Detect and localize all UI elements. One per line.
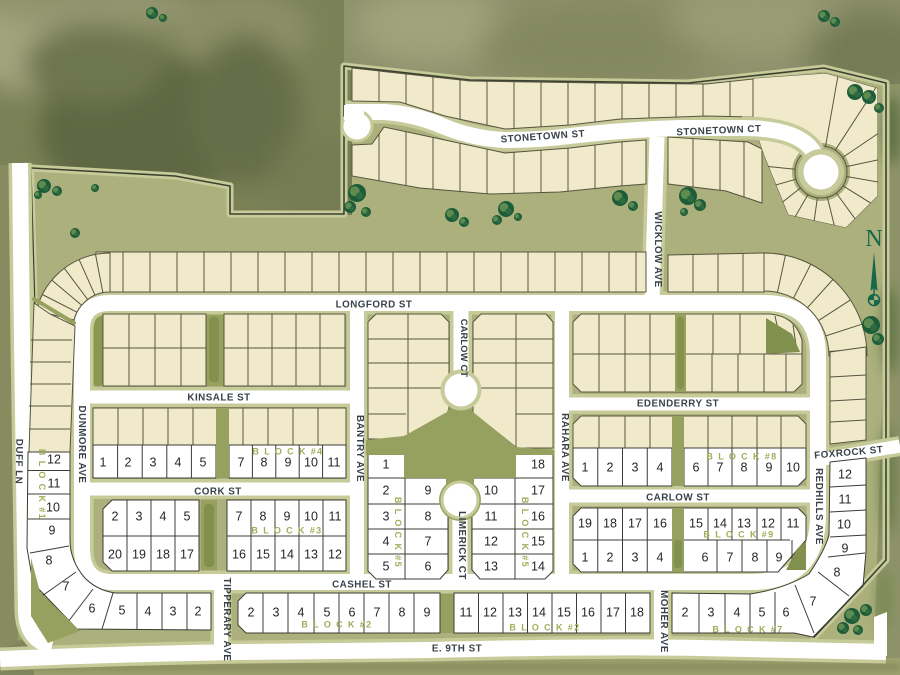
- svg-text:MOHER AVE: MOHER AVE: [658, 590, 669, 653]
- svg-text:10: 10: [304, 456, 318, 470]
- svg-text:7: 7: [717, 461, 724, 475]
- svg-text:17: 17: [180, 548, 194, 562]
- svg-text:LONGFORD ST: LONGFORD ST: [336, 300, 413, 311]
- svg-text:8: 8: [261, 456, 268, 470]
- svg-text:12: 12: [483, 606, 497, 620]
- svg-text:B L O C K #5: B L O C K #5: [393, 497, 403, 568]
- svg-text:13: 13: [508, 606, 522, 620]
- svg-text:6: 6: [425, 560, 432, 574]
- svg-text:5: 5: [759, 606, 766, 620]
- svg-text:10: 10: [837, 518, 851, 532]
- svg-text:4: 4: [145, 605, 152, 619]
- svg-text:9: 9: [425, 484, 432, 498]
- svg-text:6: 6: [702, 551, 709, 565]
- svg-text:3: 3: [632, 551, 639, 565]
- svg-text:8: 8: [834, 566, 841, 580]
- svg-text:B L O C K #2: B L O C K #2: [509, 623, 580, 633]
- svg-text:B L O C K #3: B L O C K #3: [251, 526, 322, 536]
- svg-text:16: 16: [232, 548, 246, 562]
- svg-text:5: 5: [383, 560, 390, 574]
- svg-text:7: 7: [63, 580, 70, 594]
- svg-text:CARLOW CT: CARLOW CT: [459, 319, 469, 378]
- svg-text:B L O C K #5: B L O C K #5: [520, 497, 530, 568]
- svg-text:4: 4: [298, 606, 305, 620]
- svg-text:3: 3: [170, 605, 177, 619]
- svg-text:B L O C K #4: B L O C K #4: [252, 447, 323, 457]
- svg-text:3: 3: [632, 461, 639, 475]
- svg-text:11: 11: [787, 517, 800, 531]
- svg-text:4: 4: [734, 606, 741, 620]
- svg-text:18: 18: [603, 517, 617, 531]
- svg-text:3: 3: [383, 510, 390, 524]
- svg-text:B L O C K #1: B L O C K #1: [37, 449, 47, 520]
- svg-text:RAHARA AVE: RAHARA AVE: [559, 413, 570, 482]
- svg-text:5: 5: [200, 456, 207, 470]
- svg-text:7: 7: [238, 456, 245, 470]
- svg-text:14: 14: [531, 560, 545, 574]
- svg-text:8: 8: [425, 510, 432, 524]
- svg-text:15: 15: [531, 535, 545, 549]
- svg-text:11: 11: [329, 510, 342, 524]
- svg-text:2: 2: [112, 510, 119, 524]
- svg-text:CASHEL ST: CASHEL ST: [332, 580, 392, 591]
- svg-text:EDENDERRY ST: EDENDERRY ST: [637, 399, 719, 410]
- svg-text:10: 10: [484, 484, 498, 498]
- svg-text:3: 3: [273, 606, 280, 620]
- svg-text:9: 9: [776, 551, 783, 565]
- svg-text:6: 6: [693, 461, 700, 475]
- svg-text:3: 3: [136, 510, 143, 524]
- svg-text:B L O C K #8: B L O C K #8: [706, 452, 777, 462]
- svg-text:2: 2: [682, 606, 689, 620]
- svg-text:5: 5: [184, 510, 191, 524]
- svg-text:12: 12: [328, 548, 342, 562]
- svg-text:2: 2: [125, 456, 132, 470]
- svg-text:7: 7: [236, 510, 243, 524]
- svg-text:8: 8: [741, 461, 748, 475]
- svg-text:11: 11: [460, 606, 473, 620]
- svg-text:12: 12: [838, 468, 852, 482]
- svg-text:11: 11: [328, 456, 341, 470]
- svg-text:15: 15: [256, 548, 270, 562]
- svg-text:9: 9: [424, 606, 431, 620]
- svg-text:9: 9: [284, 510, 291, 524]
- svg-text:TIPPERARY AVE: TIPPERARY AVE: [221, 578, 232, 662]
- svg-text:1: 1: [383, 458, 390, 472]
- svg-text:18: 18: [630, 606, 644, 620]
- svg-text:17: 17: [606, 606, 620, 620]
- svg-text:18: 18: [531, 458, 545, 472]
- svg-text:20: 20: [108, 548, 122, 562]
- svg-text:E. 9TH ST: E. 9TH ST: [432, 644, 482, 655]
- svg-text:10: 10: [304, 510, 318, 524]
- svg-text:9: 9: [285, 456, 292, 470]
- svg-text:4: 4: [160, 510, 167, 524]
- svg-text:16: 16: [581, 606, 595, 620]
- svg-text:11: 11: [839, 493, 852, 507]
- svg-text:15: 15: [557, 606, 571, 620]
- svg-text:8: 8: [46, 554, 53, 568]
- svg-text:DUFF LN: DUFF LN: [13, 439, 25, 485]
- svg-text:7: 7: [374, 606, 381, 620]
- svg-text:4: 4: [657, 551, 664, 565]
- svg-text:WICKLOW AVE: WICKLOW AVE: [652, 211, 663, 287]
- svg-text:18: 18: [156, 548, 170, 562]
- svg-text:19: 19: [132, 548, 146, 562]
- svg-text:1: 1: [582, 551, 589, 565]
- svg-text:B L O C K #7: B L O C K #7: [712, 625, 783, 635]
- svg-text:2: 2: [383, 484, 390, 498]
- svg-text:2: 2: [607, 461, 614, 475]
- svg-text:13: 13: [304, 548, 318, 562]
- svg-text:16: 16: [531, 510, 545, 524]
- svg-text:7: 7: [727, 551, 734, 565]
- svg-text:15: 15: [689, 517, 703, 531]
- svg-text:10: 10: [46, 501, 60, 515]
- svg-text:4: 4: [383, 535, 390, 549]
- svg-text:REDHILLS AVE: REDHILLS AVE: [813, 468, 824, 545]
- svg-text:10: 10: [786, 461, 800, 475]
- svg-text:13: 13: [737, 517, 751, 531]
- svg-text:14: 14: [713, 517, 727, 531]
- svg-text:6: 6: [89, 602, 96, 616]
- svg-text:4: 4: [175, 456, 182, 470]
- svg-text:1: 1: [582, 461, 589, 475]
- svg-text:19: 19: [578, 517, 592, 531]
- svg-text:9: 9: [766, 461, 773, 475]
- svg-text:B L O C K #9: B L O C K #9: [703, 530, 774, 540]
- svg-text:17: 17: [628, 517, 642, 531]
- svg-text:16: 16: [653, 517, 667, 531]
- svg-text:14: 14: [532, 606, 546, 620]
- svg-text:12: 12: [47, 453, 61, 467]
- svg-text:13: 13: [484, 560, 498, 574]
- svg-text:12: 12: [484, 535, 498, 549]
- svg-text:4: 4: [657, 461, 664, 475]
- svg-text:17: 17: [531, 484, 545, 498]
- svg-text:B L O C K #2: B L O C K #2: [301, 620, 372, 630]
- svg-text:8: 8: [752, 551, 759, 565]
- svg-text:CORK ST: CORK ST: [194, 487, 242, 498]
- svg-text:12: 12: [761, 517, 775, 531]
- svg-text:5: 5: [324, 606, 331, 620]
- svg-text:6: 6: [349, 606, 356, 620]
- svg-text:7: 7: [810, 595, 817, 609]
- svg-text:8: 8: [260, 510, 267, 524]
- svg-text:11: 11: [485, 510, 498, 524]
- svg-text:KINSALE ST: KINSALE ST: [187, 393, 250, 404]
- svg-text:1: 1: [100, 456, 107, 470]
- svg-text:LIMERICK CT: LIMERICK CT: [456, 511, 467, 580]
- svg-text:3: 3: [708, 606, 715, 620]
- svg-text:11: 11: [48, 477, 61, 491]
- svg-text:DUNMORE AVE: DUNMORE AVE: [76, 406, 87, 484]
- svg-text:5: 5: [119, 604, 126, 618]
- svg-text:N: N: [865, 226, 882, 252]
- svg-text:14: 14: [280, 548, 294, 562]
- svg-text:7: 7: [425, 535, 432, 549]
- svg-text:6: 6: [783, 606, 790, 620]
- svg-text:8: 8: [399, 606, 406, 620]
- svg-text:BANTRY AVE: BANTRY AVE: [354, 415, 365, 482]
- svg-text:9: 9: [842, 542, 849, 556]
- svg-text:CARLOW ST: CARLOW ST: [646, 493, 710, 504]
- svg-text:3: 3: [150, 456, 157, 470]
- svg-text:2: 2: [248, 606, 255, 620]
- svg-text:9: 9: [49, 524, 56, 538]
- svg-text:2: 2: [607, 551, 614, 565]
- svg-text:2: 2: [195, 605, 202, 619]
